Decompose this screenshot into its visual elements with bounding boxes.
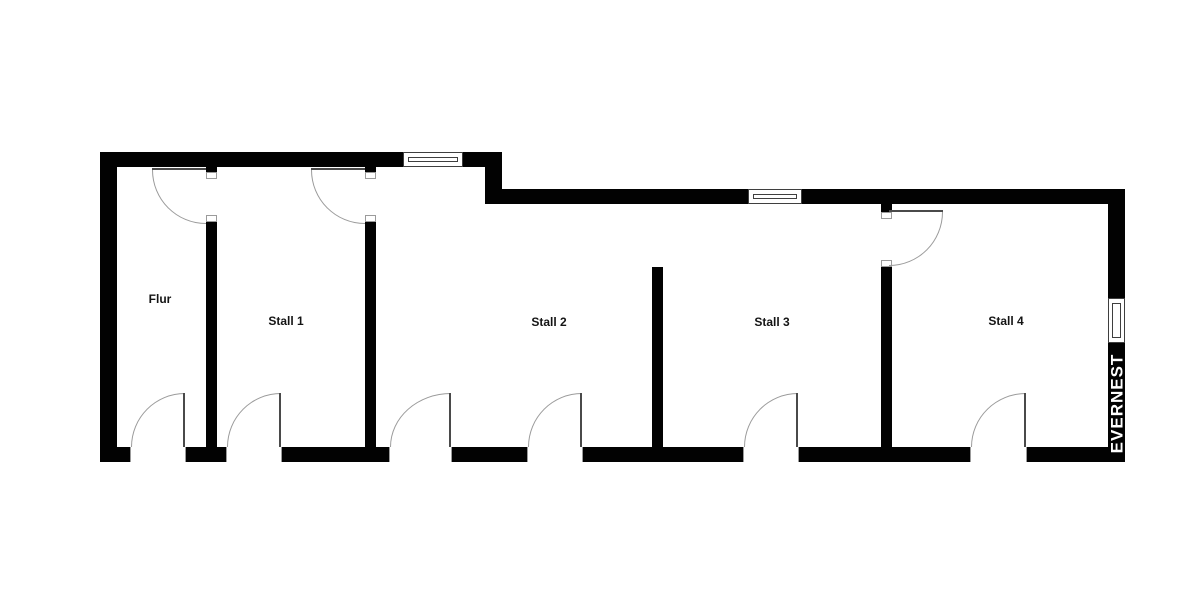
window-pane [1112, 303, 1121, 338]
door-exterior-flur-arc [131, 393, 185, 447]
wall-bottom-segment [185, 447, 227, 462]
door-exterior-stall3-arc [744, 393, 798, 447]
door-jamb [206, 215, 217, 222]
wall-flur-stall1 [206, 222, 217, 447]
door-exterior-stall2-right-arc [528, 393, 582, 447]
door-jamb-line [185, 447, 186, 462]
door-jamb-line [527, 447, 528, 462]
door-jamb-line [130, 447, 131, 462]
wall-bottom-segment [798, 447, 971, 462]
door-jamb-line [451, 447, 452, 462]
room-label-stall3: Stall 3 [754, 315, 789, 329]
room-label-stall1: Stall 1 [268, 314, 303, 328]
door-jamb [365, 215, 376, 222]
door-stall4-arc [889, 212, 943, 266]
door-exterior-stall1-arc [227, 393, 281, 447]
wall-top-right [485, 189, 1125, 204]
door-jamb-line [970, 447, 971, 462]
window-pane [753, 194, 797, 199]
wall-left [100, 152, 117, 462]
door-jamb-line [582, 447, 583, 462]
wall-bottom-segment [100, 447, 131, 462]
watermark-evernest: EVERNEST [1109, 342, 1126, 466]
door-stall1-arc [311, 170, 365, 224]
door-flur-arc [152, 170, 206, 224]
room-label-stall2: Stall 2 [531, 315, 566, 329]
window-top-right [748, 189, 802, 204]
door-jamb [206, 172, 217, 179]
door-exterior-stall3-leaf [796, 393, 798, 447]
wall-bottom-segment [281, 447, 390, 462]
wall-bottom-segment [451, 447, 528, 462]
door-exterior-stall2-right-leaf [580, 393, 582, 447]
door-jamb-line [1026, 447, 1027, 462]
door-exterior-stall2-left-leaf [449, 393, 451, 447]
door-exterior-stall4-leaf [1024, 393, 1026, 447]
door-exterior-stall1-leaf [279, 393, 281, 447]
door-jamb-line [743, 447, 744, 462]
room-label-stall4: Stall 4 [988, 314, 1023, 328]
floor-plan: Flur Stall 1 Stall 2 Stall 3 Stall 4 EVE… [0, 0, 1200, 600]
door-jamb-line [798, 447, 799, 462]
door-jamb [365, 172, 376, 179]
wall-bottom-segment [582, 447, 744, 462]
door-exterior-stall4-arc [971, 393, 1026, 447]
door-jamb-line [281, 447, 282, 462]
wall-right-upper [1108, 189, 1125, 298]
window-top-left [403, 152, 463, 167]
wall-stall1-stall2 [365, 222, 376, 447]
door-jamb-line [389, 447, 390, 462]
door-exterior-stall2-left-arc [390, 393, 451, 447]
window-right [1108, 298, 1125, 343]
wall-stall2-stall3 [652, 267, 663, 447]
wall-stall3-stall4 [881, 267, 892, 447]
room-label-flur: Flur [149, 292, 172, 306]
door-jamb-line [226, 447, 227, 462]
window-pane [408, 157, 458, 162]
door-exterior-flur-leaf [183, 393, 185, 447]
